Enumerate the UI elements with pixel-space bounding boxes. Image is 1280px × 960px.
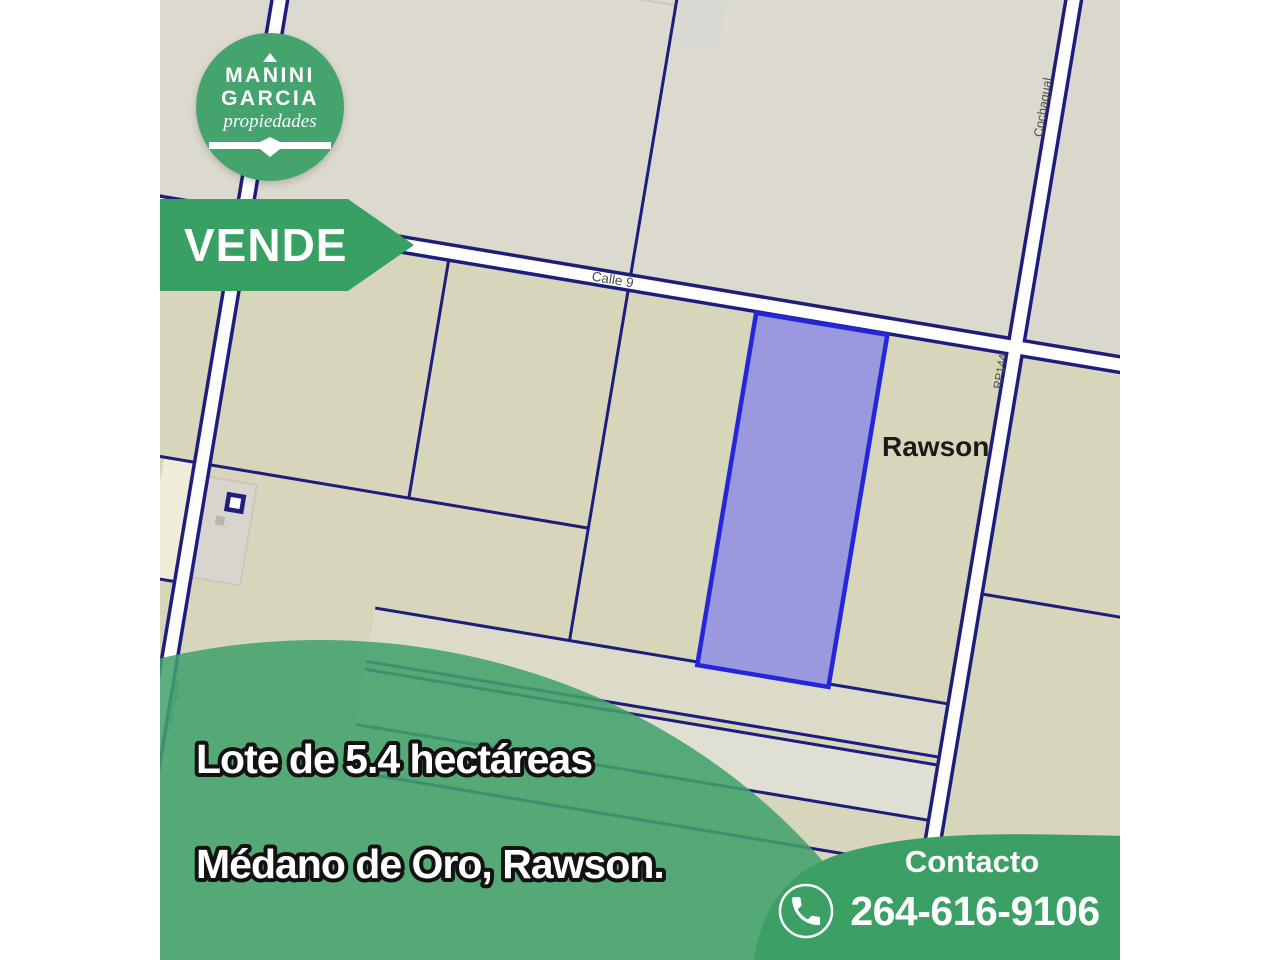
brand-name-line1: MANINI [196,64,344,87]
contact-heading: Contacto [905,844,1039,879]
listing-location: Médano de Oro, Rawson. [196,841,664,887]
brand-name-line2: GARCIA [196,87,344,110]
vende-label: VENDE [160,218,347,272]
map-marker-small-icon [215,516,225,526]
locality-label: Rawson [882,431,989,462]
map-marker-square-icon [227,494,244,511]
ad-flyer: Calle 9 Cochagual RP144 Cochagual Rawson… [0,0,1280,960]
contact-phone: 264-616-9106 [850,888,1099,934]
brand-logo: MANINI GARCIA propiedades [196,33,344,181]
parcel-map: Calle 9 Cochagual RP144 Cochagual Rawson… [0,0,1280,960]
logo-book-band-icon [209,137,331,159]
brand-tagline: propiedades [196,111,344,133]
logo-triangle-icon [263,53,277,62]
listing-headline: Lote de 5.4 hectáreas [196,736,592,782]
